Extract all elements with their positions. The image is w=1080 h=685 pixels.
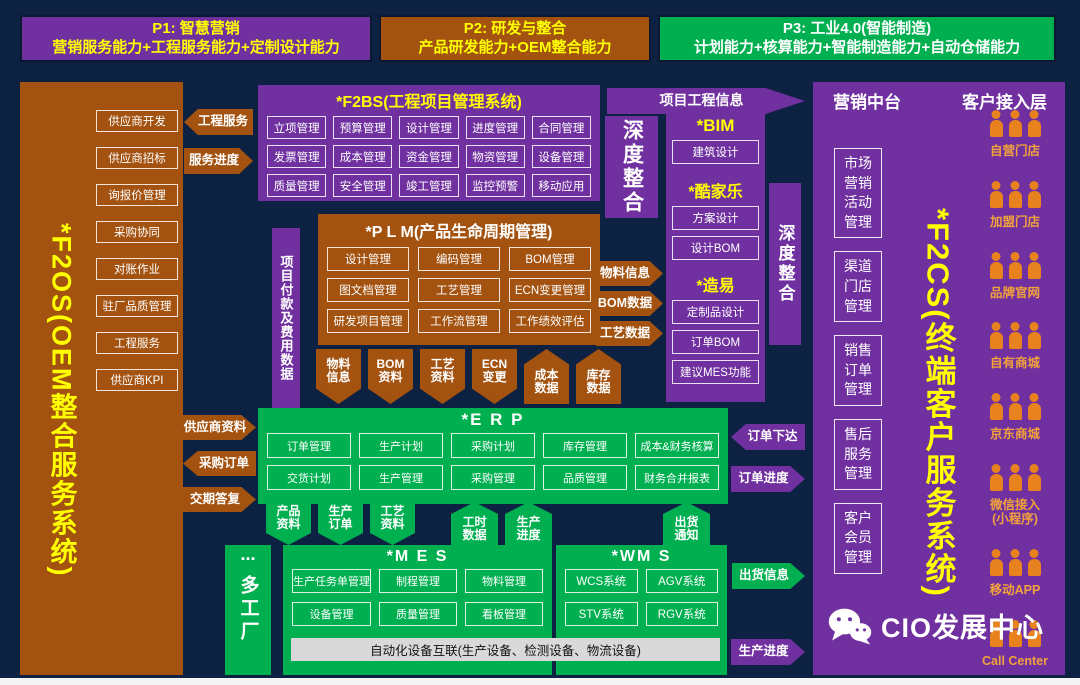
- person-icon: [990, 464, 1003, 491]
- plm-erp-arrow: 工艺 资料: [420, 349, 465, 404]
- capability-bar-title: P3: 工业4.0(智能制造): [783, 20, 931, 39]
- erp-mes-down-arrow: 生产 订单: [318, 502, 363, 545]
- wms-title: *WM S: [556, 545, 727, 566]
- person-icon: [1028, 464, 1041, 491]
- erp-module: 品质管理: [543, 465, 627, 490]
- f2os-module: 询报价管理: [96, 184, 178, 206]
- plm-module: 工作绩效评估: [509, 309, 591, 333]
- data-arrow: 物料信息: [596, 261, 663, 286]
- capability-bar-subtitle: 计划能力+核算能力+智能制造能力+自动仓储能力: [694, 39, 1020, 58]
- bottom-edge: [0, 678, 1080, 685]
- bim-module: 建筑设计: [672, 140, 759, 164]
- kujiale-title: *酷家乐: [688, 178, 742, 202]
- erp-mes-up-arrow: 出货 通知: [663, 502, 710, 545]
- channel-people-icons: [987, 110, 1044, 142]
- erp-module: 生产计划: [359, 433, 443, 458]
- f2os-module: 工程服务: [96, 332, 178, 354]
- customer-channel: 微信接入 (小程序): [970, 464, 1060, 527]
- mes-module: 质量管理: [379, 602, 457, 626]
- customer-channel: 自营门店: [970, 110, 1060, 158]
- payment-data-strip: 项目付款及费用数据: [272, 228, 300, 408]
- f2bs-module: 进度管理: [466, 116, 525, 139]
- wms-module: STV系统: [565, 602, 638, 626]
- kujiale-modules: 方案设计设计BOM: [672, 206, 759, 260]
- plm-module: 工作流管理: [418, 309, 500, 333]
- f2bs-module: 设备管理: [532, 145, 591, 168]
- erp-panel: *E R P 订单管理生产计划采购计划库存管理成本&财务核算交货计划生产管理采购…: [258, 408, 728, 504]
- f2bs-title: *F2BS(工程项目管理系统): [258, 85, 600, 112]
- f2bs-module: 立项管理: [267, 116, 326, 139]
- person-icon: [1028, 322, 1041, 349]
- person-icon: [990, 181, 1003, 208]
- plm-module: 工艺管理: [418, 278, 500, 302]
- multi-factory-panel: ... 多工厂: [225, 545, 271, 675]
- f2cs-title: *F2CS(终端客户服务系统): [909, 166, 967, 640]
- watermark-text: CIO发展中心: [881, 606, 1044, 645]
- person-icon: [1009, 322, 1022, 349]
- erp-title: *E R P: [258, 408, 728, 430]
- f2os-modules: 供应商开发供应商招标询报价管理采购协同对账作业驻厂品质管理工程服务供应商KPI: [96, 110, 178, 391]
- f2bs-module: 合同管理: [532, 116, 591, 139]
- top-capability-bars: P1: 智慧营销 营销服务能力+工程服务能力+定制设计能力 P2: 研发与整合 …: [20, 15, 1056, 62]
- order-release-arrow: 订单下达: [731, 424, 805, 450]
- capability-bar: P3: 工业4.0(智能制造) 计划能力+核算能力+智能制造能力+自动仓储能力: [658, 15, 1056, 62]
- plm-erp-arrows: 物料 信息BOM 资料工艺 资料ECN 变更成本 数据库存 数据: [316, 349, 621, 404]
- channel-label: 自营门店: [990, 144, 1040, 158]
- plm-erp-arrow: BOM 资料: [368, 349, 413, 404]
- mes-module: 物料管理: [465, 569, 543, 593]
- service-arrow: 服务进度: [184, 148, 253, 174]
- f2bs-module: 质量管理: [267, 174, 326, 197]
- data-arrow: BOM数据: [596, 291, 663, 316]
- person-icon: [1028, 110, 1041, 137]
- plm-erp-arrow: ECN 变更: [472, 349, 517, 404]
- zaoyi-modules: 定制品设计订单BOM建议MES功能: [672, 300, 759, 384]
- marketing-module: 渠道门店管理: [834, 251, 882, 322]
- bim-modules: 建筑设计: [672, 140, 759, 164]
- f2bs-modules: 立项管理预算管理设计管理进度管理合同管理发票管理成本管理资金管理物资管理设备管理…: [258, 116, 600, 197]
- mes-module: 制程管理: [379, 569, 457, 593]
- plm-module: 设计管理: [327, 247, 409, 271]
- erp-modules: 订单管理生产计划采购计划库存管理成本&财务核算交货计划生产管理采购管理品质管理财…: [258, 433, 728, 490]
- kujiale-module: 方案设计: [672, 206, 759, 230]
- erp-mes-down-arrow: 工艺 资料: [370, 502, 415, 545]
- f2bs-module: 物资管理: [466, 145, 525, 168]
- person-icon: [1009, 549, 1022, 576]
- marketing-module: 售后服务管理: [834, 419, 882, 490]
- customer-channel: 品牌官网: [970, 252, 1060, 300]
- zaoyi-title: *造易: [696, 272, 734, 296]
- f2bs-module: 移动应用: [532, 174, 591, 197]
- mes-module: 生产任务单管理: [292, 569, 371, 593]
- erp-module: 库存管理: [543, 433, 627, 458]
- channel-label: Call Center: [982, 654, 1048, 668]
- erp-module: 生产管理: [359, 465, 443, 490]
- f2os-module: 供应商KPI: [96, 369, 178, 391]
- capability-bar-subtitle: 产品研发能力+OEM整合能力: [419, 39, 612, 58]
- channel-people-icons: [987, 549, 1044, 581]
- marketing-customer-panel: 营销中台 客户接入层 市场营销活动管理渠道门店管理销售订单管理售后服务管理客户会…: [813, 82, 1065, 675]
- f2bs-module: 预算管理: [333, 116, 392, 139]
- person-icon: [1009, 393, 1022, 420]
- channel-label: 加盟门店: [990, 215, 1040, 229]
- channel-label: 品牌官网: [990, 286, 1040, 300]
- capability-bar: P2: 研发与整合 产品研发能力+OEM整合能力: [379, 15, 651, 62]
- zaoyi-module: 订单BOM: [672, 330, 759, 354]
- person-icon: [1028, 181, 1041, 208]
- channel-people-icons: [987, 464, 1044, 496]
- marketing-header: 营销中台: [833, 88, 901, 113]
- data-arrows: 物料信息BOM数据工艺数据: [596, 261, 663, 346]
- capability-bar-subtitle: 营销服务能力+工程服务能力+定制设计能力: [52, 39, 340, 58]
- channel-label: 京东商城: [990, 427, 1040, 441]
- wms-modules: WCS系统AGV系统STV系统RGV系统: [556, 569, 727, 626]
- capability-bar-title: P1: 智慧营销: [152, 20, 240, 39]
- channel-people-icons: [987, 393, 1044, 425]
- plm-modules: 设计管理编码管理BOM管理图文档管理工艺管理ECN变更管理研发项目管理工作流管理…: [318, 247, 600, 333]
- customer-channel: 移动APP: [970, 549, 1060, 597]
- erp-module: 交货计划: [267, 465, 351, 490]
- bim-title: *BIM: [697, 116, 735, 136]
- f2bs-module: 发票管理: [267, 145, 326, 168]
- channel-people-icons: [987, 252, 1044, 284]
- channel-label: 微信接入 (小程序): [990, 498, 1040, 527]
- mes-modules: 生产任务单管理制程管理物料管理设备管理质量管理看板管理: [283, 569, 552, 626]
- wms-module: RGV系统: [646, 602, 719, 626]
- channel-label: 自有商城: [990, 356, 1040, 370]
- mes-module: 看板管理: [465, 602, 543, 626]
- architecture-diagram: P1: 智慧营销 营销服务能力+工程服务能力+定制设计能力 P2: 研发与整合 …: [0, 0, 1080, 685]
- plm-module: 研发项目管理: [327, 309, 409, 333]
- supplier-arrow: 采购订单: [183, 451, 256, 476]
- plm-panel: *P L M(产品生命周期管理) 设计管理编码管理BOM管理图文档管理工艺管理E…: [318, 214, 600, 345]
- zaoyi-module: 定制品设计: [672, 300, 759, 324]
- erp-module: 财务合并报表: [635, 465, 719, 490]
- design-tools-panel: *BIM 建筑设计 *酷家乐 方案设计设计BOM *造易 定制品设计订单BOM建…: [666, 112, 765, 402]
- mes-title: *M E S: [283, 545, 552, 566]
- person-icon: [990, 393, 1003, 420]
- f2bs-module: 安全管理: [333, 174, 392, 197]
- production-progress-arrow: 生产进度: [731, 639, 805, 665]
- erp-module: 成本&财务核算: [635, 433, 719, 458]
- person-icon: [1009, 252, 1022, 279]
- erp-module: 采购计划: [451, 433, 535, 458]
- customer-channels: 自营门店 加盟门店 品牌官网 自有商城 京东商城 微信接入 (小程序) 移动AP…: [970, 110, 1060, 668]
- person-icon: [990, 110, 1003, 137]
- project-info-arrow: 项目工程信息: [607, 88, 805, 114]
- person-icon: [1028, 393, 1041, 420]
- person-icon: [1009, 464, 1022, 491]
- f2os-panel: *F2OS(OEM整合服务系统) 供应商开发供应商招标询报价管理采购协同对账作业…: [20, 82, 183, 675]
- f2os-module: 供应商招标: [96, 147, 178, 169]
- capability-bar: P1: 智慧营销 营销服务能力+工程服务能力+定制设计能力: [20, 15, 372, 62]
- channel-label: 移动APP: [990, 583, 1041, 597]
- marketing-module: 销售订单管理: [834, 335, 882, 406]
- mes-module: 设备管理: [292, 602, 371, 626]
- kujiale-module: 设计BOM: [672, 236, 759, 260]
- erp-module: 订单管理: [267, 433, 351, 458]
- capability-bar-title: P2: 研发与整合: [464, 20, 567, 39]
- erp-mes-up-arrow: 生产 进度: [505, 502, 552, 545]
- f2bs-module: 设计管理: [399, 116, 458, 139]
- wms-module: WCS系统: [565, 569, 638, 593]
- f2bs-module: 监控预警: [466, 174, 525, 197]
- deep-integration-right: 深度整合: [769, 183, 801, 345]
- person-icon: [990, 322, 1003, 349]
- plm-module: ECN变更管理: [509, 278, 591, 302]
- marketing-modules: 市场营销活动管理渠道门店管理销售订单管理售后服务管理客户会员管理: [834, 148, 882, 574]
- customer-channel: 加盟门店: [970, 181, 1060, 229]
- f2os-module: 驻厂品质管理: [96, 295, 178, 317]
- person-icon: [1009, 181, 1022, 208]
- f2os-module: 采购协同: [96, 221, 178, 243]
- device-interconnect-strip: 自动化设备互联(生产设备、检测设备、物流设备): [291, 638, 720, 661]
- marketing-module: 客户会员管理: [834, 503, 882, 574]
- supplier-arrows: 供应商资料采购订单交期答复: [183, 415, 256, 512]
- plm-module: BOM管理: [509, 247, 591, 271]
- zaoyi-module: 建议MES功能: [672, 360, 759, 384]
- plm-erp-arrow: 物料 信息: [316, 349, 361, 404]
- person-icon: [990, 252, 1003, 279]
- f2os-module: 供应商开发: [96, 110, 178, 132]
- supplier-arrow: 供应商资料: [183, 415, 256, 440]
- erp-mes-up-arrows: 工时 数据生产 进度出货 通知: [451, 502, 710, 545]
- f2bs-module: 竣工管理: [399, 174, 458, 197]
- service-arrow: 工程服务: [184, 109, 253, 135]
- order-progress-arrow: 订单进度: [731, 466, 805, 492]
- data-arrow: 工艺数据: [596, 321, 663, 346]
- plm-module: 图文档管理: [327, 278, 409, 302]
- multi-factory-dots: ...: [240, 547, 255, 561]
- f2bs-module: 资金管理: [399, 145, 458, 168]
- marketing-module: 市场营销活动管理: [834, 148, 882, 238]
- f2bs-module: 成本管理: [333, 145, 392, 168]
- erp-mes-up-arrow: 工时 数据: [451, 502, 498, 545]
- channel-people-icons: [987, 322, 1044, 354]
- f2bs-panel: *F2BS(工程项目管理系统) 立项管理预算管理设计管理进度管理合同管理发票管理…: [258, 85, 600, 201]
- plm-erp-arrow: 库存 数据: [576, 349, 621, 404]
- deep-integration-left: 深度整合: [605, 116, 658, 218]
- service-arrows: 工程服务服务进度: [184, 109, 253, 174]
- plm-erp-arrow: 成本 数据: [524, 349, 569, 404]
- watermark: CIO发展中心: [827, 606, 1044, 645]
- person-icon: [1028, 252, 1041, 279]
- customer-channel: 自有商城: [970, 322, 1060, 370]
- multi-factory-label: 多工厂: [235, 561, 262, 657]
- plm-title: *P L M(产品生命周期管理): [318, 214, 600, 242]
- f2os-module: 对账作业: [96, 258, 178, 280]
- erp-mes-down-arrows: 产品 资料生产 订单工艺 资料: [266, 502, 415, 545]
- customer-channel: 京东商城: [970, 393, 1060, 441]
- wechat-icon: [827, 607, 873, 645]
- shipping-info-arrow: 出货信息: [732, 563, 805, 589]
- plm-module: 编码管理: [418, 247, 500, 271]
- person-icon: [1028, 549, 1041, 576]
- f2os-title: *F2OS(OEM整合服务系统): [28, 140, 96, 660]
- erp-module: 采购管理: [451, 465, 535, 490]
- supplier-arrow: 交期答复: [183, 487, 256, 512]
- wms-module: AGV系统: [646, 569, 719, 593]
- person-icon: [1009, 110, 1022, 137]
- person-icon: [990, 549, 1003, 576]
- channel-people-icons: [987, 181, 1044, 213]
- erp-mes-down-arrow: 产品 资料: [266, 502, 311, 545]
